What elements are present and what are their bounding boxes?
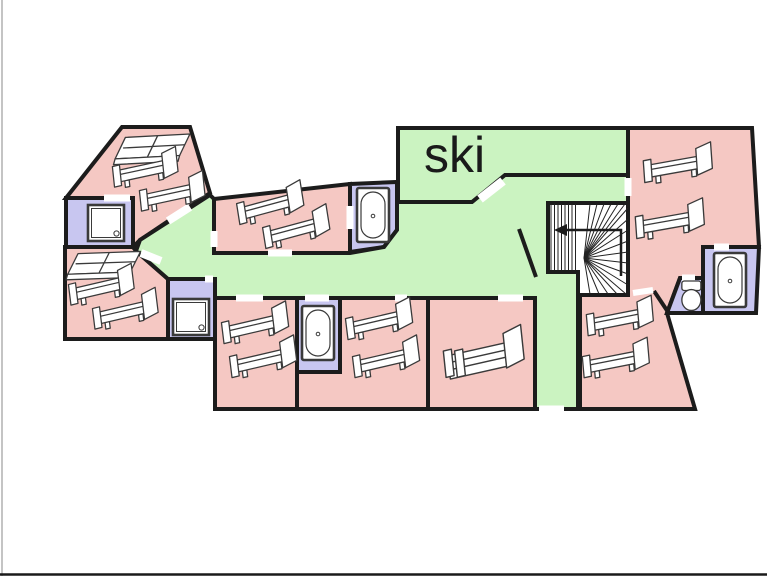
bathtub-icon (357, 188, 389, 242)
ski-room-label: ski (424, 127, 485, 183)
floor-plan-svg: ski (0, 0, 767, 576)
bathtub-icon (714, 253, 746, 307)
shower-icon (173, 299, 209, 335)
bathtub-icon (302, 306, 334, 360)
shower-icon (88, 205, 124, 241)
door-east-bedroom-south (633, 290, 653, 293)
floor-plan-page: ski (0, 0, 767, 576)
toilet-icon (682, 281, 701, 310)
room-bedroom-north-middle (214, 184, 350, 253)
